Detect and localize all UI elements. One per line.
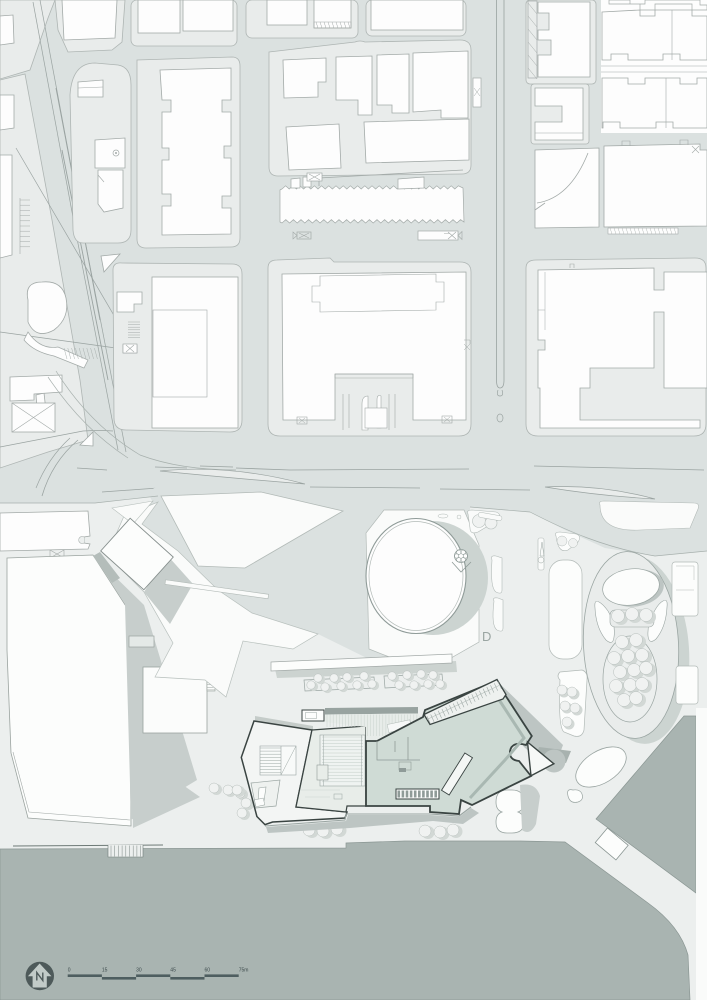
svg-text:60: 60 [205,968,211,974]
svg-text:D: D [482,629,491,644]
svg-text:75m: 75m [239,968,249,974]
svg-text:45: 45 [170,968,176,974]
svg-text:30: 30 [136,968,142,974]
svg-text:0: 0 [68,968,71,974]
svg-text:15: 15 [102,968,108,974]
